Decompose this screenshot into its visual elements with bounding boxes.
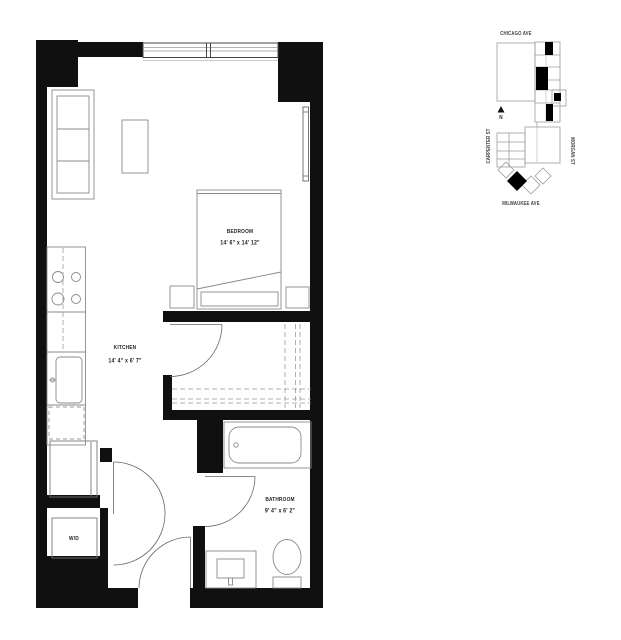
site-map-highlighted-units (507, 42, 561, 191)
wall-kitchen-stub (100, 448, 112, 462)
floorplan-page: BEDROOM 14' 6" x 14' 12" KITCHEN 14' 4" … (0, 0, 621, 640)
bedroom-label: BEDROOM (227, 229, 253, 235)
kitchen-label: KITCHEN (114, 345, 137, 351)
bedroom-furniture (170, 190, 309, 309)
street-label-chicago-ave: CHICAGO AVE (500, 31, 531, 37)
street-label-morgan-st: MORGAN ST (569, 137, 575, 165)
wall-closet-south (163, 410, 313, 420)
wall-bath-west (193, 526, 205, 588)
stove (52, 272, 81, 306)
laundry-label: W/D (69, 536, 79, 542)
living-room-window (143, 43, 278, 61)
bedroom-dimensions: 14' 6" x 14' 12" (220, 240, 259, 247)
bathtub (224, 422, 311, 468)
wall-right (310, 100, 323, 590)
sofa (52, 90, 94, 199)
bathroom-vanity (206, 551, 256, 588)
north-arrow-icon (498, 106, 505, 113)
wall-bedroom-south (163, 311, 323, 322)
floorplan-drawing (0, 0, 621, 640)
wall-left (36, 42, 47, 562)
wall-bath-northwest (197, 420, 223, 473)
street-label-carpenter-st: CARPENTER ST (486, 128, 492, 163)
site-map (497, 42, 566, 194)
street-label-milwaukee-ave: MILWAUKEE AVE (502, 201, 539, 207)
dishwasher (49, 407, 84, 439)
north-label: N (499, 115, 502, 121)
wall-laundry-east (100, 508, 108, 588)
walls (36, 40, 323, 608)
bed (197, 190, 281, 309)
wall-bottom-right (190, 588, 323, 608)
nightstand-right (286, 287, 309, 308)
bedroom-window (303, 107, 309, 181)
wall-top-right-block (278, 42, 323, 102)
kitchen-dimensions: 14' 4" x 6' 7" (108, 358, 141, 365)
closet-door (170, 325, 222, 377)
living-furniture (52, 90, 148, 199)
site-map-buildings (497, 42, 566, 194)
bathroom-door (205, 477, 255, 527)
closet-shelving (172, 324, 311, 408)
coffee-table (122, 120, 148, 173)
bathroom-dimensions: 9' 4" x 6' 2" (265, 508, 295, 515)
wall-top (36, 42, 143, 57)
refrigerator (50, 441, 97, 497)
kitchen-fixtures (47, 247, 97, 497)
entry-door (139, 537, 191, 588)
toilet (273, 540, 301, 589)
wall-bottom-left (108, 588, 138, 608)
nightstand-left (170, 286, 194, 308)
wall-bottom-left-mass (36, 556, 108, 608)
kitchen-sink (49, 357, 82, 403)
bathroom-label: BATHROOM (265, 497, 294, 503)
